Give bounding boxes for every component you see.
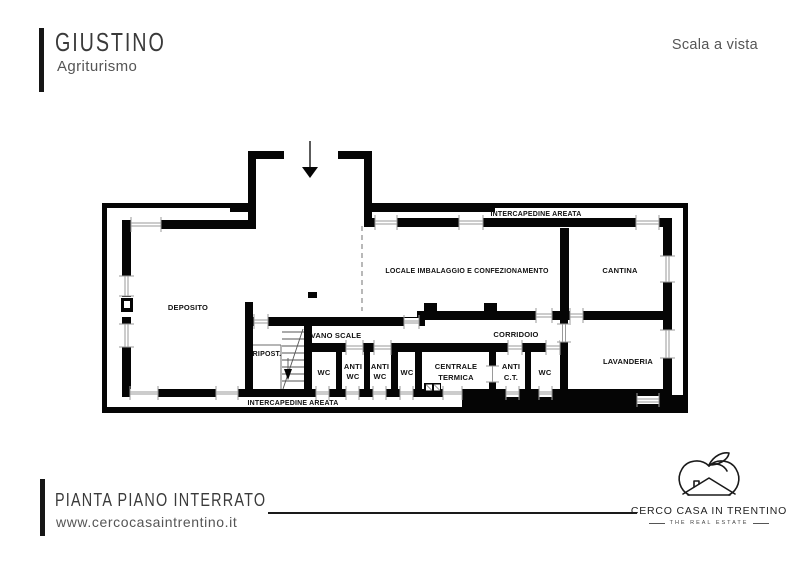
room-label-anti-ct: ANTI	[502, 362, 520, 371]
column-pillar	[308, 292, 317, 298]
brand-name: CERCO CASA IN TRENTINO	[628, 505, 790, 517]
room-label-vano-scale: VANO SCALE	[311, 331, 362, 340]
room-label-wc-3: WC	[539, 368, 552, 377]
room-label-ripostiglio: RIPOST.	[253, 351, 282, 358]
room-label-intercapedine-bottom: INTERCAPEDINE AREATA	[248, 400, 339, 407]
walls	[102, 151, 688, 413]
room-label-wc-1: WC	[318, 368, 331, 377]
room-label-anti-wc-1: ANTI	[344, 362, 362, 371]
room-label-centrale-termica: CENTRALE	[435, 362, 477, 371]
room-label-wc-2: WC	[401, 368, 414, 377]
plan-title: PIANTA PIANO INTERRATO	[55, 490, 266, 511]
room-label-anti-wc-2: ANTI	[371, 362, 389, 371]
room-label-deposito: DEPOSITO	[168, 303, 208, 312]
room-label-anti-wc-2: WC	[374, 372, 387, 381]
staircase	[253, 329, 304, 389]
website-url[interactable]: www.cercocasaintrentino.it	[56, 514, 237, 530]
brand-block: CERCO CASA IN TRENTINO THE REAL ESTATE	[628, 450, 790, 526]
room-label-cantina: CANTINA	[602, 266, 638, 275]
room-label-centrale-termica: TERMICA	[438, 373, 474, 382]
room-label-corridoio: CORRIDOIO	[493, 330, 538, 339]
floor-plan-sheet: GIUSTINO Agriturismo Scala a vista	[0, 0, 800, 565]
room-label-lavanderia: LAVANDERIA	[603, 357, 653, 366]
tagline-dash-right	[753, 523, 769, 524]
entrance-arrow-icon	[302, 141, 318, 178]
room-label-anti-ct: C.T.	[504, 373, 518, 382]
boiler-symbol	[424, 383, 441, 392]
room-label-intercapedine-top: INTERCAPEDINE AREATA	[491, 211, 582, 218]
footer-divider-line	[268, 512, 637, 514]
tagline-dash-left	[649, 523, 665, 524]
brand-logo-apple-house-icon	[661, 450, 757, 504]
room-label-anti-wc-1: WC	[347, 372, 360, 381]
footer-accent-bar	[40, 479, 45, 536]
brand-tagline-text: THE REAL ESTATE	[670, 520, 749, 526]
brand-tagline: THE REAL ESTATE	[628, 520, 790, 526]
stair-direction-arrow-icon	[284, 369, 292, 380]
room-label-locale-imballaggio: LOCALE IMBALAGGIO E CONFEZIONAMENTO	[385, 268, 549, 275]
